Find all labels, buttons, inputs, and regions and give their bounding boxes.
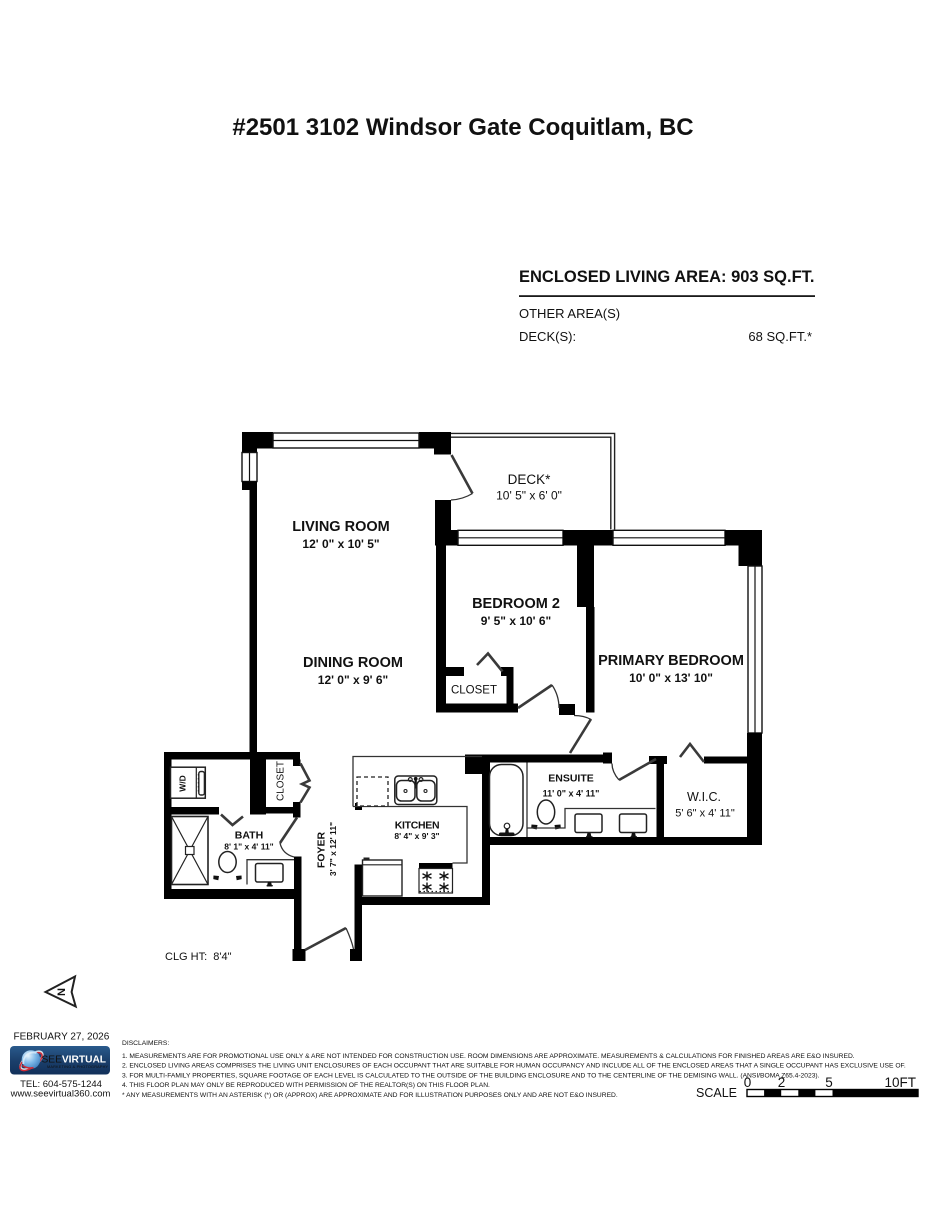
- svg-text:DINING ROOM: DINING ROOM: [303, 655, 403, 671]
- svg-text:LIVING ROOM: LIVING ROOM: [292, 519, 389, 535]
- svg-text:DISCLAIMERS:: DISCLAIMERS:: [122, 1040, 169, 1047]
- svg-text:10FT: 10FT: [884, 1075, 916, 1090]
- svg-text:N: N: [56, 988, 68, 996]
- svg-text:ENSUITE: ENSUITE: [548, 773, 594, 785]
- svg-text:PRIMARY BEDROOM: PRIMARY BEDROOM: [598, 653, 744, 669]
- svg-text:#2501 3102 Windsor Gate Coquit: #2501 3102 Windsor Gate Coquitlam, BC: [232, 114, 693, 141]
- svg-text:* ANY MEASUREMENTS WITH AN AST: * ANY MEASUREMENTS WITH AN ASTERISK (*) …: [122, 1092, 618, 1099]
- svg-text:2. ENCLOSED LIVING AREAS COMPR: 2. ENCLOSED LIVING AREAS COMPRISES THE L…: [122, 1063, 906, 1070]
- svg-text:11' 0" x 4' 11": 11' 0" x 4' 11": [543, 789, 600, 799]
- svg-text:2: 2: [778, 1075, 786, 1090]
- svg-text:12' 0" x 9' 6": 12' 0" x 9' 6": [318, 673, 388, 687]
- svg-text:8' 4" x 9' 3": 8' 4" x 9' 3": [394, 831, 439, 841]
- svg-text:8' 1" x 4' 11": 8' 1" x 4' 11": [224, 842, 273, 852]
- svg-text:10' 5" x 6' 0": 10' 5" x 6' 0": [496, 489, 562, 503]
- svg-text:4. THIS FLOOR PLAN MAY ONLY BE: 4. THIS FLOOR PLAN MAY ONLY BE REPRODUCE…: [122, 1082, 490, 1089]
- svg-text:FEBRUARY 27, 2026: FEBRUARY 27, 2026: [14, 1032, 110, 1043]
- svg-text:DECK*: DECK*: [508, 472, 552, 487]
- svg-text:CLOSET: CLOSET: [451, 685, 497, 697]
- svg-text:KITCHEN: KITCHEN: [395, 820, 440, 832]
- svg-text:12' 0" x 10' 5": 12' 0" x 10' 5": [302, 537, 379, 551]
- svg-text:BEDROOM 2: BEDROOM 2: [472, 596, 560, 612]
- svg-text:MARKETING & PHOTOGRAPHY: MARKETING & PHOTOGRAPHY: [47, 1065, 109, 1069]
- svg-text:W.I.C.: W.I.C.: [687, 790, 721, 804]
- svg-text:CLOSET: CLOSET: [276, 761, 287, 801]
- svg-text:3. FOR MULTI-FAMILY PROPERTIES: 3. FOR MULTI-FAMILY PROPERTIES, SQUARE F…: [122, 1072, 820, 1079]
- svg-text:FOYER: FOYER: [315, 831, 327, 868]
- svg-text:www.seevirtual360.com: www.seevirtual360.com: [10, 1089, 111, 1100]
- svg-text:DECK(S):: DECK(S):: [519, 329, 576, 344]
- svg-text:0: 0: [744, 1075, 752, 1090]
- svg-text:1. MEASUREMENTS ARE FOR PROMOT: 1. MEASUREMENTS ARE FOR PROMOTIONAL USE …: [122, 1053, 855, 1060]
- svg-text:OTHER AREA(S): OTHER AREA(S): [519, 306, 620, 321]
- svg-text:BATH: BATH: [235, 830, 263, 842]
- svg-text:5' 6" x 4' 11": 5' 6" x 4' 11": [675, 808, 735, 820]
- svg-text:ENCLOSED LIVING AREA: 903 SQ.F: ENCLOSED LIVING AREA: 903 SQ.FT.: [519, 268, 815, 286]
- svg-text:10' 0" x 13' 10": 10' 0" x 13' 10": [629, 671, 713, 685]
- svg-text:9' 5" x 10' 6": 9' 5" x 10' 6": [481, 614, 551, 628]
- svg-text:5: 5: [825, 1075, 833, 1090]
- svg-text:68 SQ.FT.*: 68 SQ.FT.*: [748, 329, 812, 344]
- svg-text:SCALE: SCALE: [696, 1086, 737, 1100]
- svg-text:CLG HT: 8'4": CLG HT: 8'4": [165, 951, 232, 963]
- svg-text:W/D: W/D: [177, 775, 187, 792]
- svg-text:3' 7" x 12' 11": 3' 7" x 12' 11": [328, 822, 338, 876]
